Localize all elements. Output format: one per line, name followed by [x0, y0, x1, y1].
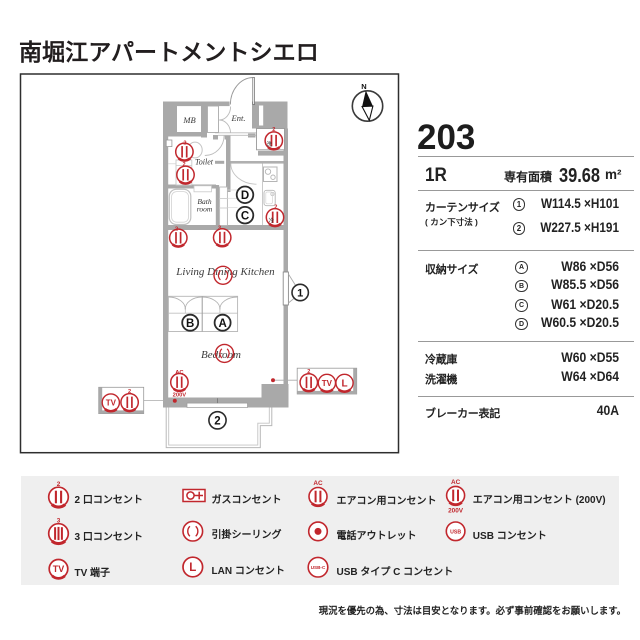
svg-text:USB: USB: [450, 529, 461, 535]
svg-text:AC: AC: [451, 479, 461, 486]
svg-text:USB-C: USB-C: [311, 565, 326, 570]
svg-text:AC: AC: [313, 480, 323, 487]
svg-text:2: 2: [57, 481, 61, 488]
svg-text:L: L: [189, 562, 196, 574]
svg-text:TV: TV: [53, 564, 65, 574]
svg-text:200V: 200V: [448, 507, 464, 514]
svg-text:3: 3: [57, 518, 61, 525]
